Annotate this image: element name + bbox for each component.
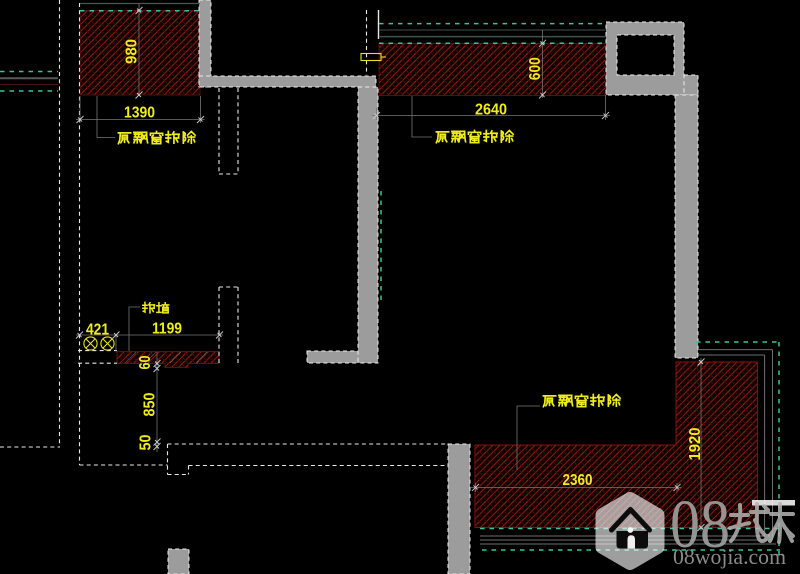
svg-text:980: 980 [124, 39, 141, 64]
svg-text:1199: 1199 [152, 321, 182, 338]
svg-text:60: 60 [137, 356, 154, 370]
svg-text:08wojia.com: 08wojia.com [673, 544, 786, 569]
svg-text:600: 600 [527, 57, 544, 80]
svg-text:850: 850 [142, 393, 159, 417]
svg-text:2640: 2640 [475, 102, 507, 119]
svg-text:1920: 1920 [687, 427, 704, 460]
svg-text:50: 50 [138, 435, 155, 451]
svg-text:421: 421 [86, 322, 109, 339]
svg-text:1390: 1390 [124, 105, 155, 122]
svg-text:2360: 2360 [563, 472, 593, 489]
